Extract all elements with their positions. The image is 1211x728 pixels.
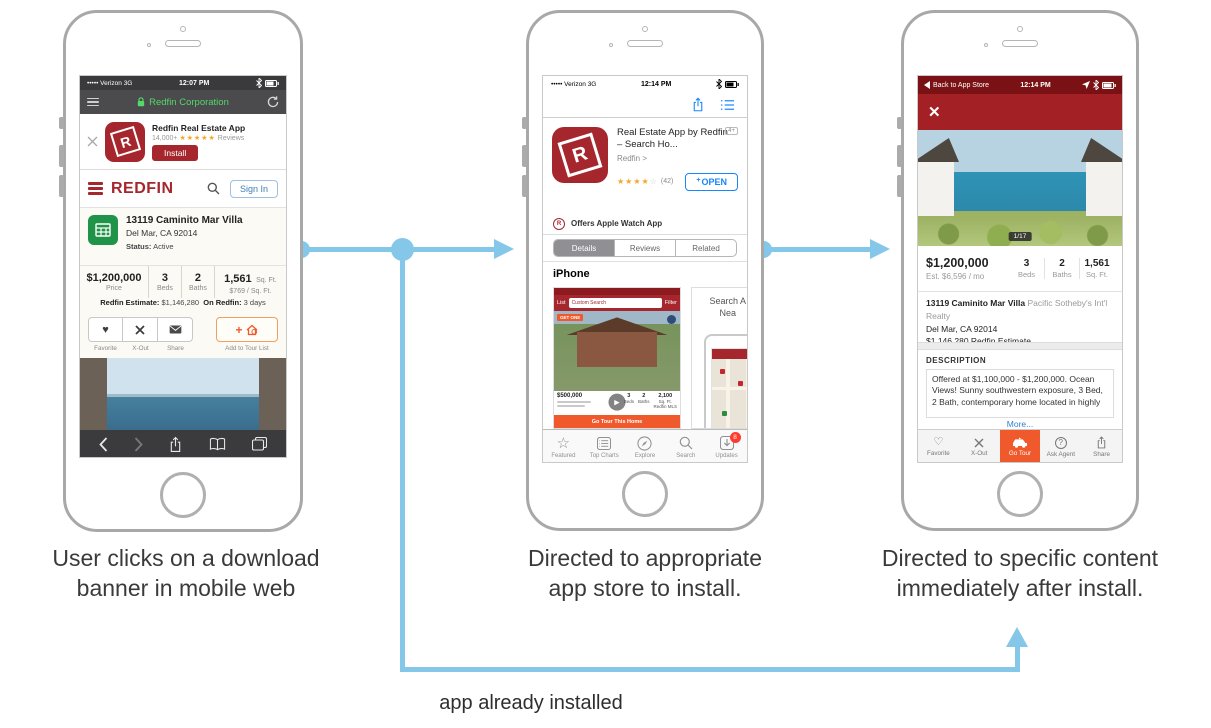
section-label-iphone: iPhone (543, 261, 747, 283)
volume-up-button (897, 145, 902, 167)
deck-structure-left (80, 358, 107, 430)
screenshot-status-bar (554, 288, 680, 295)
speaker-slot (165, 40, 201, 47)
lock-icon (137, 97, 145, 107)
flow-arrow-2-line (762, 247, 872, 252)
battery-icon (1102, 82, 1116, 89)
sensor-dot (147, 43, 151, 47)
foreground-bushes (918, 216, 1122, 246)
tab-search[interactable]: Search (665, 430, 706, 463)
clock-label: 12:07 PM (132, 80, 256, 87)
listing-price: $1,200,000 (926, 256, 989, 270)
caption-step-2-line-1: Directed to appropriate (473, 544, 817, 574)
estimate-line: Redfin Estimate: $1,146,280 On Redfin: 3… (80, 298, 286, 313)
star-empty-icon: ☆ (650, 177, 658, 186)
camera-dot (1017, 26, 1023, 32)
screenshot-search-field: Custom Search (569, 298, 662, 308)
phone-3-screen: Back to App Store 12:14 PM ✕ 1/17 (917, 75, 1123, 463)
house-roof-left (917, 138, 959, 162)
redfin-watch-icon: R (553, 218, 565, 230)
tour-car-icon (1012, 437, 1028, 448)
city-line: Del Mar, CA 92014 (926, 323, 1114, 336)
mls-source-icon (88, 215, 118, 245)
listing-photo[interactable]: 1/17 (918, 130, 1122, 246)
back-to-app-store-link[interactable]: Back to App Store (933, 82, 989, 89)
caption-step-2-line-2: app store to install. (473, 574, 817, 604)
carrier-label: ••••• Verizon 3G (551, 81, 596, 88)
caption-step-3: Directed to specific content immediately… (839, 544, 1201, 604)
share-action[interactable]: Share (158, 317, 193, 352)
status-bar: ••••• Verizon 3G 12:07 PM (80, 76, 286, 90)
street-address: 13119 Caminito Mar Villa (926, 298, 1025, 308)
status-bar: ••••• Verizon 3G 12:14 PM (543, 76, 747, 92)
house-right (1086, 162, 1122, 222)
map-toggle-icon (667, 315, 676, 324)
screenshot-2-title: Search A Nea (692, 296, 747, 319)
share-icon[interactable] (692, 97, 704, 112)
listing-status: Status: Active (126, 242, 243, 251)
mute-switch (522, 117, 527, 129)
share-icon (1096, 436, 1107, 449)
x-icon[interactable] (123, 317, 158, 342)
apple-watch-row: R Offers Apple Watch App (543, 213, 747, 235)
tab-details[interactable]: Details (554, 240, 614, 256)
caption-step-1-line-2: banner in mobile web (10, 574, 362, 604)
flow-bypass-up-line (1015, 646, 1020, 672)
app-developer-link[interactable]: Redfin > (617, 154, 738, 163)
envelope-icon[interactable] (158, 317, 193, 342)
forward-icon[interactable] (134, 437, 143, 452)
watch-label: Offers Apple Watch App (571, 219, 662, 228)
app-title: Real Estate App by Redfin – Search Ho... (617, 127, 729, 152)
section-divider (918, 342, 1122, 350)
listing-action-bar: ♡ Favorite X-Out Go Tour ? Ask Agent (918, 429, 1122, 463)
star-icon: ☆ (557, 436, 570, 451)
listing-summary: 13119 Caminito Mar Villa Del Mar, CA 920… (80, 208, 286, 265)
install-button[interactable]: Install (152, 145, 198, 161)
updates-badge: 8 (730, 432, 741, 443)
listing-address: 13119 Caminito Mar Villa (126, 215, 243, 226)
site-title: Redfin Corporation (99, 97, 267, 108)
listing-header-bar: ✕ (918, 94, 1122, 130)
battery-icon (725, 81, 739, 88)
back-icon[interactable] (99, 437, 108, 452)
top-charts-icon (597, 437, 611, 450)
app-screenshot-1: List Custom Search Filter GET ONE $500,0… (553, 287, 681, 429)
diagram-canvas: User clicks on a download banner in mobi… (0, 0, 1211, 728)
tab-explore[interactable]: Explore (625, 430, 666, 463)
clock-label: 12:14 PM (992, 82, 1079, 89)
app-screenshot-2: Search A Nea (691, 287, 747, 429)
banner-app-name: Redfin Real Estate App (152, 123, 245, 133)
speaker-slot (1002, 40, 1038, 47)
flow-arrow-2-head (870, 239, 890, 259)
mute-switch (897, 117, 902, 129)
open-button[interactable]: +OPEN (685, 173, 738, 191)
search-icon (679, 436, 693, 450)
tab-related[interactable]: Related (675, 240, 736, 256)
redfin-app-icon: R (552, 127, 608, 183)
add-to-tour-action[interactable]: + Add to Tour List (216, 317, 278, 352)
favorite-action[interactable]: ♥ Favorite (88, 317, 123, 352)
sensor-dot (984, 43, 988, 47)
listing-actions: ♥ Favorite X-Out Share (80, 313, 286, 358)
stat-baths: 2 Baths (1044, 258, 1079, 279)
sign-in-button[interactable]: Sign In (230, 180, 278, 198)
stat-baths: 2 Baths (181, 266, 214, 298)
caption-step-2: Directed to appropriate app store to ins… (473, 544, 817, 604)
tab-reviews[interactable]: Reviews (614, 240, 675, 256)
speaker-slot (627, 40, 663, 47)
store-nav-bar (543, 92, 747, 118)
listing-city: Del Mar, CA 92014 (126, 228, 243, 238)
x-icon (974, 438, 984, 448)
phone-1-screen: ••••• Verizon 3G 12:07 PM Redfin Corpora… (79, 75, 287, 458)
more-link[interactable]: More... (926, 419, 1114, 429)
xout-action[interactable]: X-Out (959, 430, 1000, 463)
house-roof-right (1081, 138, 1123, 162)
property-photo (80, 358, 286, 430)
compass-icon (637, 436, 652, 451)
refresh-icon[interactable] (267, 96, 279, 108)
listing-summary: $1,200,000 Est. $6,596 / mo 3 Beds 2 Bat… (918, 246, 1122, 292)
status-bar: Back to App Store 12:14 PM (918, 76, 1122, 94)
app-download-banner[interactable]: R Redfin Real Estate App 14,000+ ★★★★★ R… (80, 114, 286, 170)
age-rating-badge: 4+ (725, 127, 738, 135)
wishlist-icon[interactable] (720, 99, 735, 111)
house-left (918, 162, 954, 222)
flow-arrow-1-head (494, 239, 514, 259)
screenshot-house-photo: GET ONE (554, 311, 680, 391)
app-listing-card: R 4+ Real Estate App by Redfin – Search … (543, 118, 747, 213)
volume-down-button (897, 175, 902, 197)
heart-outline-icon: ♡ (933, 437, 943, 448)
redfin-app-icon: R (105, 122, 145, 162)
star-rating-icons: ★★★★★ (179, 135, 215, 142)
xout-action[interactable]: X-Out (123, 317, 158, 352)
clock-label: 12:14 PM (596, 81, 716, 88)
listing-address-block: 13119 Caminito Mar Villa Pacific Sotheby… (918, 292, 1122, 342)
heart-icon[interactable]: ♥ (88, 317, 123, 342)
caption-step-3-line-2: immediately after install. (839, 574, 1201, 604)
stat-beds: 3 Beds (148, 266, 181, 298)
stat-beds: 3 Beds (1009, 258, 1044, 279)
battery-icon (265, 80, 279, 87)
video-play-icon: ▶ (609, 394, 626, 411)
search-icon[interactable] (207, 182, 220, 195)
menu-icon[interactable] (88, 180, 103, 197)
banner-rating: 14,000+ ★★★★★ Reviews (152, 134, 245, 142)
redfin-web-header: REDFIN Sign In (80, 170, 286, 208)
stat-price: $1,200,000 Price (80, 266, 148, 298)
favorite-action[interactable]: ♡ Favorite (918, 430, 959, 463)
sensor-dot (609, 43, 613, 47)
bookmarks-icon[interactable] (209, 437, 226, 451)
back-chevron-icon[interactable] (924, 81, 930, 89)
banner-close-icon[interactable] (87, 136, 98, 147)
volume-up-button (59, 145, 64, 167)
safari-toolbar (80, 430, 286, 458)
listing-stats: $1,200,000 Price 3 Beds 2 Baths 1,561 Sq… (80, 265, 286, 298)
description-section: DESCRIPTION Offered at $1,100,000 - $1,2… (918, 350, 1122, 429)
home-button[interactable] (622, 471, 668, 517)
screenshot-listing-info: $500,000 3Beds 2Baths 2,100Sq. Ft.Redfin… (554, 391, 680, 415)
deck-structure-right (259, 358, 286, 430)
flow-bypass-up-head (1006, 627, 1028, 647)
flow-bypass-vertical-line (400, 250, 405, 672)
app-store-tab-bar: ☆ Featured Top Charts Explore (543, 429, 747, 463)
screenshot-mini-phone (704, 334, 747, 429)
screenshot-strip: List Custom Search Filter GET ONE $500,0… (543, 283, 747, 429)
screenshot-tour-button: Go Tour This Home (554, 415, 680, 428)
tabs-icon[interactable] (252, 437, 267, 451)
share-icon[interactable] (169, 436, 182, 453)
caption-step-1: User clicks on a download banner in mobi… (10, 544, 362, 604)
monthly-estimate: Est. $6,596 / mo (926, 272, 989, 281)
question-bubble-icon: ? (1055, 437, 1067, 449)
mute-switch (59, 117, 64, 129)
carrier-label: ••••• Verizon 3G (87, 80, 132, 87)
add-house-icon[interactable]: + (216, 317, 278, 342)
star-rating-icons: ★★★★ (617, 177, 650, 186)
go-tour-action[interactable]: Go Tour (1000, 430, 1041, 463)
rating-count: (42) (661, 178, 686, 185)
tab-updates[interactable]: 8 Updates (706, 430, 747, 463)
volume-up-button (522, 145, 527, 167)
home-button[interactable] (160, 472, 206, 518)
camera-dot (642, 26, 648, 32)
bluetooth-icon (256, 78, 262, 88)
phone-3-redfin-app: Back to App Store 12:14 PM ✕ 1/17 (901, 10, 1139, 531)
volume-down-button (59, 175, 64, 197)
photo-counter-badge: 1/17 (1009, 232, 1032, 241)
bluetooth-icon (716, 79, 722, 89)
caption-step-3-line-1: Directed to specific content (839, 544, 1201, 574)
flow-bypass-horizontal-line (400, 667, 1020, 672)
description-title: DESCRIPTION (926, 356, 1114, 365)
map-preview (712, 359, 747, 429)
stat-sqft: 1,561 Sq. Ft. (1079, 258, 1114, 279)
phone-2-screen: ••••• Verizon 3G 12:14 PM R 4+ Real (542, 75, 748, 463)
stat-sqft: 1,561 Sq. Ft. $769 / Sq. Ft. (214, 266, 286, 298)
tab-featured[interactable]: ☆ Featured (543, 430, 584, 463)
tab-top-charts[interactable]: Top Charts (584, 430, 625, 463)
phone-2-app-store: ••••• Verizon 3G 12:14 PM R 4+ Real (526, 10, 764, 531)
redfin-logo[interactable]: REDFIN (111, 180, 207, 198)
promo-tag: GET ONE (557, 314, 583, 321)
segmented-control: Details Reviews Related (543, 235, 747, 261)
caption-app-already-installed: app already installed (381, 692, 681, 715)
safari-url-bar[interactable]: Redfin Corporation (80, 90, 286, 114)
volume-down-button (522, 175, 527, 197)
bluetooth-icon (1093, 80, 1099, 90)
reader-icon[interactable] (87, 96, 99, 109)
home-button[interactable] (997, 471, 1043, 517)
caption-step-1-line-1: User clicks on a download (10, 544, 362, 574)
phone-1-mobile-web: ••••• Verizon 3G 12:07 PM Redfin Corpora… (63, 10, 303, 532)
screenshot-nav-bar: List Custom Search Filter (554, 295, 680, 311)
description-text: Offered at $1,100,000 - $1,200,000. Ocea… (926, 369, 1114, 418)
location-icon (1082, 81, 1090, 89)
camera-dot (180, 26, 186, 32)
close-icon[interactable]: ✕ (928, 103, 941, 121)
share-action[interactable]: Share (1081, 430, 1122, 463)
ask-agent-action[interactable]: ? Ask Agent (1040, 430, 1081, 463)
